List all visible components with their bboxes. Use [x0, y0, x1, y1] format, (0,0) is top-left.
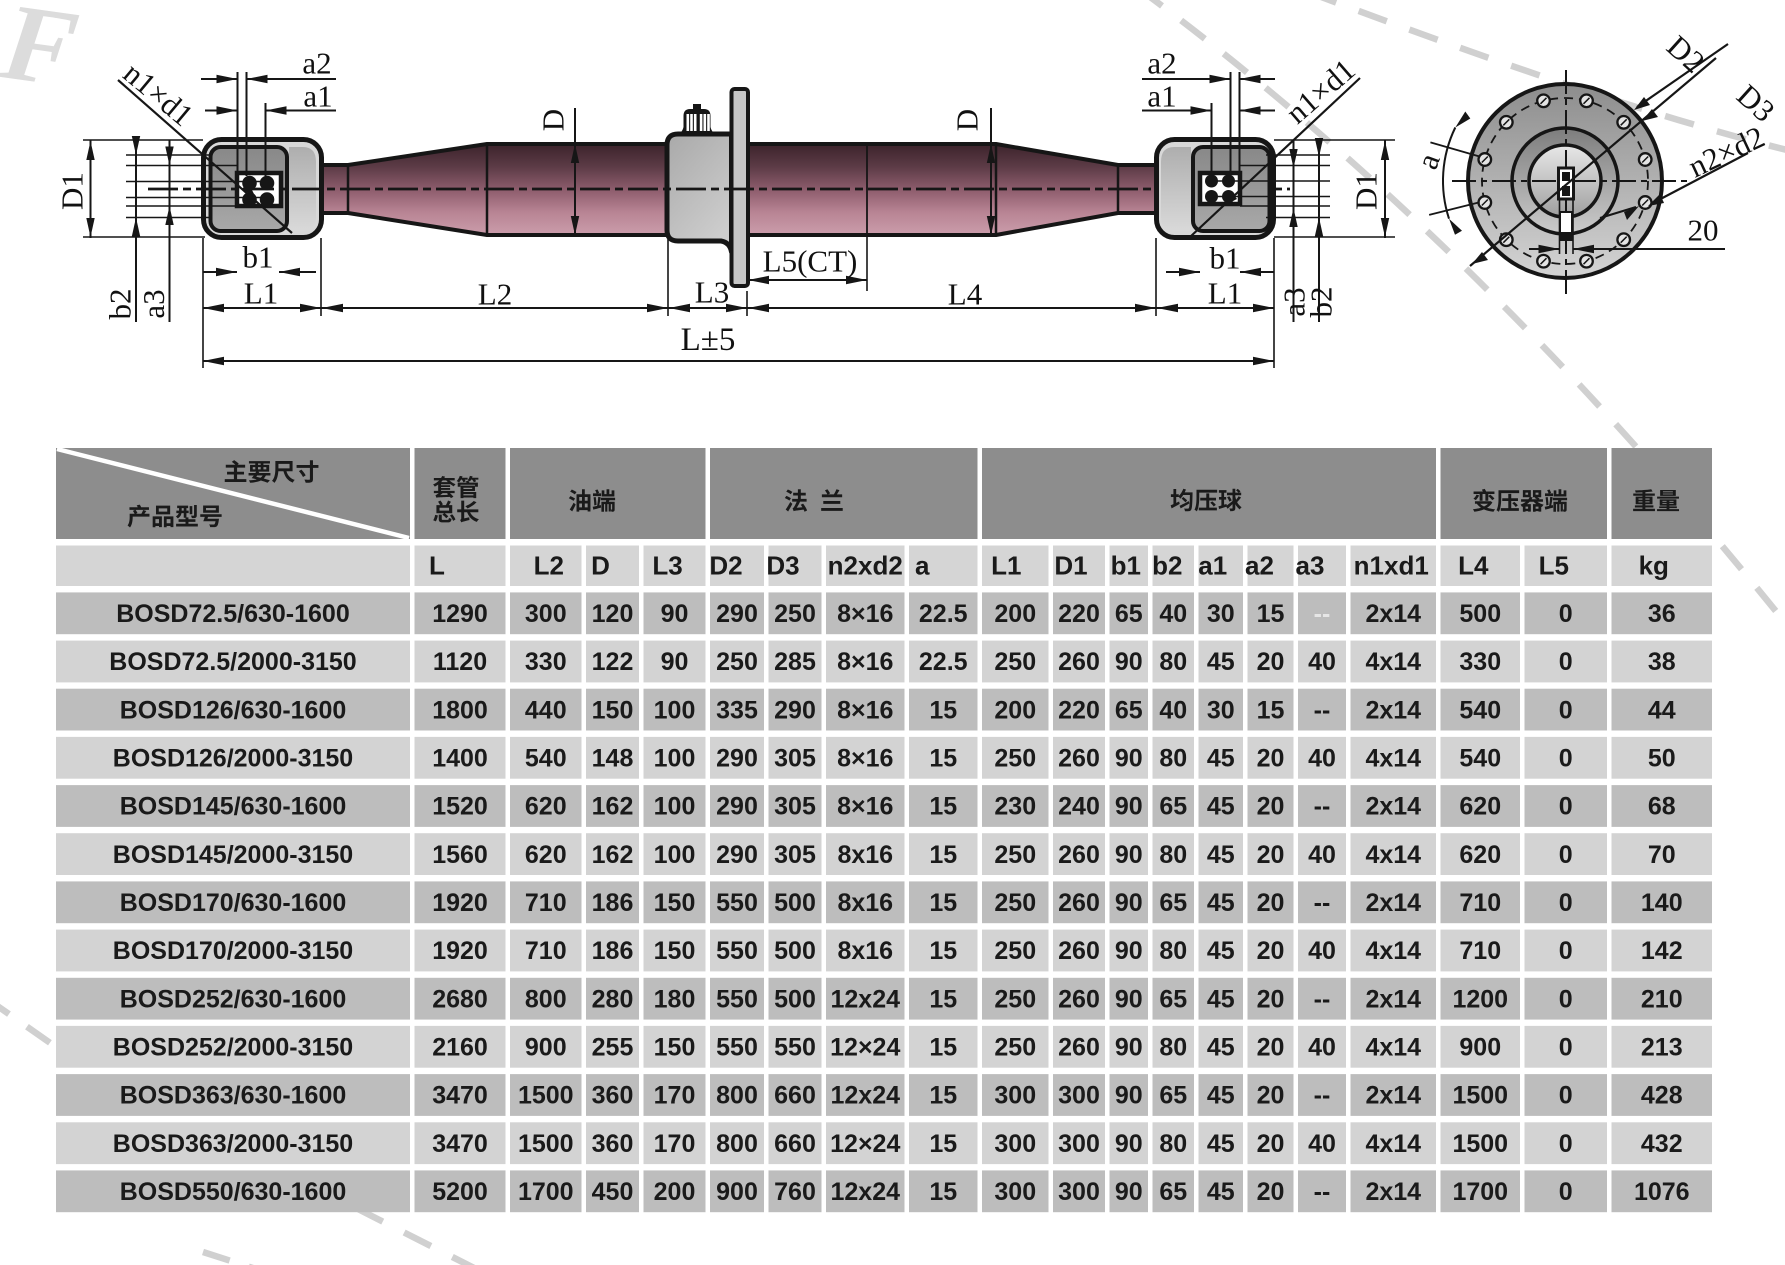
svg-text:20: 20 [1257, 1034, 1285, 1062]
svg-text:40: 40 [1308, 1034, 1336, 1062]
svg-text:L2: L2 [478, 277, 512, 312]
svg-text:15: 15 [929, 841, 957, 869]
svg-text:500: 500 [774, 889, 816, 917]
svg-text:150: 150 [654, 889, 696, 917]
svg-text:1400: 1400 [432, 744, 488, 772]
svg-text:1290: 1290 [432, 600, 488, 628]
svg-text:8x16: 8x16 [837, 841, 893, 869]
svg-text:b2: b2 [1304, 287, 1339, 318]
svg-text:20: 20 [1257, 937, 1285, 965]
svg-text:250: 250 [994, 841, 1036, 869]
svg-text:90: 90 [1115, 1082, 1143, 1110]
svg-text:a1: a1 [1198, 551, 1227, 581]
svg-text:2x14: 2x14 [1365, 793, 1421, 821]
svg-text:45: 45 [1207, 1034, 1235, 1062]
svg-text:900: 900 [1459, 1034, 1501, 1062]
svg-text:40: 40 [1159, 696, 1187, 724]
svg-text:30: 30 [1207, 696, 1235, 724]
svg-text:710: 710 [525, 937, 567, 965]
svg-text:0: 0 [1559, 696, 1573, 724]
svg-text:162: 162 [592, 841, 634, 869]
svg-text:D1: D1 [55, 172, 90, 210]
svg-text:300: 300 [994, 1178, 1036, 1206]
svg-text:b1: b1 [243, 240, 274, 275]
svg-text:1500: 1500 [1452, 1082, 1508, 1110]
svg-text:b1: b1 [1210, 241, 1241, 276]
svg-text:40: 40 [1308, 841, 1336, 869]
svg-text:90: 90 [1115, 648, 1143, 676]
svg-text:3470: 3470 [432, 1082, 488, 1110]
svg-text:360: 360 [592, 1130, 634, 1158]
svg-text:2680: 2680 [432, 985, 488, 1013]
svg-text:20: 20 [1257, 744, 1285, 772]
svg-text:290: 290 [716, 793, 758, 821]
svg-text:45: 45 [1207, 1082, 1235, 1110]
svg-text:900: 900 [716, 1178, 758, 1206]
svg-text:240: 240 [1058, 793, 1100, 821]
svg-text:20: 20 [1257, 841, 1285, 869]
svg-text:305: 305 [774, 744, 816, 772]
svg-text:0: 0 [1559, 793, 1573, 821]
svg-text:660: 660 [774, 1082, 816, 1110]
svg-text:68: 68 [1648, 793, 1676, 821]
svg-text:300: 300 [994, 1082, 1036, 1110]
svg-text:250: 250 [994, 1034, 1036, 1062]
svg-text:1700: 1700 [1452, 1178, 1508, 1206]
svg-text:162: 162 [592, 793, 634, 821]
svg-text:5200: 5200 [432, 1178, 488, 1206]
svg-text:--: -- [1314, 985, 1331, 1013]
svg-text:D2: D2 [709, 551, 742, 581]
svg-text:40: 40 [1308, 937, 1336, 965]
svg-text:b2: b2 [103, 289, 138, 320]
svg-text:1500: 1500 [518, 1082, 574, 1110]
svg-text:80: 80 [1159, 841, 1187, 869]
svg-text:44: 44 [1648, 696, 1676, 724]
svg-text:80: 80 [1159, 648, 1187, 676]
svg-text:150: 150 [654, 1034, 696, 1062]
svg-text:15: 15 [929, 985, 957, 1013]
svg-text:550: 550 [716, 1034, 758, 1062]
svg-text:a1: a1 [303, 79, 332, 114]
svg-text:290: 290 [716, 600, 758, 628]
svg-text:500: 500 [774, 985, 816, 1013]
svg-text:1700: 1700 [518, 1178, 574, 1206]
svg-text:80: 80 [1159, 744, 1187, 772]
svg-text:L1: L1 [244, 276, 278, 311]
svg-text:335: 335 [716, 696, 758, 724]
svg-text:BOSD363/630-1600: BOSD363/630-1600 [120, 1082, 347, 1110]
svg-text:230: 230 [994, 793, 1036, 821]
svg-text:15: 15 [1257, 696, 1285, 724]
svg-text:0: 0 [1559, 600, 1573, 628]
svg-text:a2: a2 [302, 46, 331, 81]
svg-text:0: 0 [1559, 1130, 1573, 1158]
svg-text:12x24: 12x24 [830, 1178, 900, 1206]
svg-text:0: 0 [1559, 1082, 1573, 1110]
svg-text:90: 90 [1115, 985, 1143, 1013]
svg-text:540: 540 [1459, 696, 1501, 724]
svg-text:BOSD145/2000-3150: BOSD145/2000-3150 [113, 841, 353, 869]
svg-text:a3: a3 [136, 289, 171, 318]
svg-text:90: 90 [661, 648, 689, 676]
svg-text:290: 290 [716, 744, 758, 772]
svg-text:D: D [950, 109, 985, 131]
svg-text:--: -- [1314, 696, 1331, 724]
svg-text:186: 186 [592, 889, 634, 917]
svg-text:200: 200 [994, 600, 1036, 628]
svg-text:40: 40 [1159, 600, 1187, 628]
svg-text:a1: a1 [1147, 79, 1176, 114]
svg-text:12x24: 12x24 [830, 1082, 900, 1110]
svg-text:432: 432 [1641, 1130, 1683, 1158]
svg-text:250: 250 [994, 985, 1036, 1013]
svg-text:--: -- [1314, 600, 1331, 628]
svg-text:BOSD170/2000-3150: BOSD170/2000-3150 [113, 937, 353, 965]
svg-text:a3: a3 [1296, 551, 1325, 581]
svg-text:65: 65 [1159, 793, 1187, 821]
svg-text:1520: 1520 [432, 793, 488, 821]
svg-text:65: 65 [1159, 889, 1187, 917]
svg-text:300: 300 [994, 1130, 1036, 1158]
svg-text:15: 15 [1257, 600, 1285, 628]
svg-text:150: 150 [592, 696, 634, 724]
svg-text:L1: L1 [991, 551, 1021, 581]
svg-text:2x14: 2x14 [1365, 985, 1421, 1013]
svg-text:186: 186 [592, 937, 634, 965]
svg-text:a2: a2 [1147, 46, 1176, 81]
svg-text:4x14: 4x14 [1365, 841, 1421, 869]
svg-text:12×24: 12×24 [830, 1130, 900, 1158]
svg-text:550: 550 [716, 937, 758, 965]
svg-text:BOSD145/630-1600: BOSD145/630-1600 [120, 793, 347, 821]
svg-text:2x14: 2x14 [1365, 696, 1421, 724]
svg-text:290: 290 [716, 841, 758, 869]
svg-text:620: 620 [525, 793, 567, 821]
svg-text:210: 210 [1641, 985, 1683, 1013]
svg-text:90: 90 [1115, 744, 1143, 772]
svg-text:D1: D1 [1054, 551, 1087, 581]
svg-text:L2: L2 [534, 551, 564, 581]
svg-text:620: 620 [1459, 793, 1501, 821]
svg-text:BOSD252/2000-3150: BOSD252/2000-3150 [113, 1034, 353, 1062]
svg-text:L±5: L±5 [681, 322, 736, 358]
svg-text:300: 300 [1058, 1130, 1100, 1158]
svg-text:450: 450 [592, 1178, 634, 1206]
svg-text:45: 45 [1207, 648, 1235, 676]
svg-text:22.5: 22.5 [919, 600, 968, 628]
svg-text:1800: 1800 [432, 696, 488, 724]
svg-text:20: 20 [1257, 648, 1285, 676]
svg-text:710: 710 [1459, 889, 1501, 917]
svg-text:180: 180 [654, 985, 696, 1013]
svg-text:65: 65 [1159, 1178, 1187, 1206]
svg-text:22.5: 22.5 [919, 648, 968, 676]
svg-text:148: 148 [592, 744, 634, 772]
svg-text:4x14: 4x14 [1365, 1034, 1421, 1062]
svg-text:30: 30 [1207, 600, 1235, 628]
svg-text:620: 620 [1459, 841, 1501, 869]
svg-text:305: 305 [774, 841, 816, 869]
svg-text:45: 45 [1207, 937, 1235, 965]
svg-text:760: 760 [774, 1178, 816, 1206]
svg-text:--: -- [1314, 889, 1331, 917]
svg-text:220: 220 [1058, 600, 1100, 628]
svg-text:8x16: 8x16 [837, 937, 893, 965]
svg-text:0: 0 [1559, 937, 1573, 965]
svg-text:20: 20 [1257, 985, 1285, 1013]
svg-text:300: 300 [1058, 1178, 1100, 1206]
svg-text:BOSD72.5/630-1600: BOSD72.5/630-1600 [116, 600, 349, 628]
svg-text:8×16: 8×16 [837, 696, 893, 724]
svg-text:L: L [429, 551, 445, 581]
svg-text:65: 65 [1115, 696, 1143, 724]
svg-text:100: 100 [654, 793, 696, 821]
svg-text:b1: b1 [1111, 551, 1141, 581]
svg-text:122: 122 [592, 648, 634, 676]
svg-text:15: 15 [929, 696, 957, 724]
svg-text:250: 250 [994, 744, 1036, 772]
svg-text:L4: L4 [948, 277, 983, 312]
svg-text:15: 15 [929, 1034, 957, 1062]
svg-text:540: 540 [525, 744, 567, 772]
svg-text:45: 45 [1207, 889, 1235, 917]
svg-text:90: 90 [1115, 841, 1143, 869]
svg-text:15: 15 [929, 1082, 957, 1110]
svg-text:213: 213 [1641, 1034, 1683, 1062]
svg-text:710: 710 [1459, 937, 1501, 965]
svg-text:260: 260 [1058, 1034, 1100, 1062]
svg-text:285: 285 [774, 648, 816, 676]
svg-text:250: 250 [994, 937, 1036, 965]
svg-text:800: 800 [716, 1082, 758, 1110]
svg-text:170: 170 [654, 1082, 696, 1110]
svg-text:20: 20 [1257, 1130, 1285, 1158]
svg-text:100: 100 [654, 744, 696, 772]
svg-text:36: 36 [1648, 600, 1676, 628]
svg-text:L4: L4 [1458, 551, 1489, 581]
svg-text:D: D [536, 109, 571, 131]
svg-text:70: 70 [1648, 841, 1676, 869]
svg-text:45: 45 [1207, 1130, 1235, 1158]
svg-text:800: 800 [716, 1130, 758, 1158]
svg-text:0: 0 [1559, 985, 1573, 1013]
svg-text:0: 0 [1559, 1178, 1573, 1206]
svg-text:305: 305 [774, 793, 816, 821]
svg-text:8×16: 8×16 [837, 793, 893, 821]
svg-text:a2: a2 [1245, 551, 1274, 581]
svg-text:--: -- [1314, 1082, 1331, 1110]
svg-text:0: 0 [1559, 648, 1573, 676]
svg-text:900: 900 [525, 1034, 567, 1062]
svg-text:150: 150 [654, 937, 696, 965]
svg-text:2x14: 2x14 [1365, 1178, 1421, 1206]
svg-text:80: 80 [1159, 1130, 1187, 1158]
svg-text:38: 38 [1648, 648, 1676, 676]
svg-text:45: 45 [1207, 744, 1235, 772]
svg-text:200: 200 [994, 696, 1036, 724]
svg-text:BOSD363/2000-3150: BOSD363/2000-3150 [113, 1130, 353, 1158]
svg-text:1500: 1500 [1452, 1130, 1508, 1158]
svg-text:260: 260 [1058, 841, 1100, 869]
svg-text:BOSD72.5/2000-3150: BOSD72.5/2000-3150 [109, 648, 356, 676]
svg-text:550: 550 [774, 1034, 816, 1062]
svg-text:n1xd1: n1xd1 [1354, 551, 1429, 581]
svg-text:15: 15 [929, 1130, 957, 1158]
svg-text:20: 20 [1257, 793, 1285, 821]
svg-text:20: 20 [1257, 889, 1285, 917]
svg-text:360: 360 [592, 1082, 634, 1110]
svg-text:8×16: 8×16 [837, 744, 893, 772]
svg-text:100: 100 [654, 841, 696, 869]
svg-text:65: 65 [1159, 1082, 1187, 1110]
svg-text:50: 50 [1648, 744, 1676, 772]
svg-text:BOSD126/630-1600: BOSD126/630-1600 [120, 696, 347, 724]
svg-text:kg: kg [1639, 551, 1669, 581]
svg-text:142: 142 [1641, 937, 1683, 965]
svg-text:620: 620 [525, 841, 567, 869]
svg-text:2x14: 2x14 [1365, 600, 1421, 628]
svg-text:220: 220 [1058, 696, 1100, 724]
svg-text:a: a [915, 551, 930, 581]
svg-text:65: 65 [1115, 600, 1143, 628]
svg-text:D3: D3 [766, 551, 799, 581]
svg-text:200: 200 [654, 1178, 696, 1206]
svg-text:L5(CT): L5(CT) [763, 244, 858, 279]
svg-text:90: 90 [1115, 1178, 1143, 1206]
svg-text:260: 260 [1058, 985, 1100, 1013]
svg-text:300: 300 [1058, 1082, 1100, 1110]
svg-text:D1: D1 [1349, 172, 1384, 210]
svg-text:1076: 1076 [1634, 1178, 1690, 1206]
svg-text:15: 15 [929, 1178, 957, 1206]
svg-text:8x16: 8x16 [837, 889, 893, 917]
svg-text:0: 0 [1559, 1034, 1573, 1062]
svg-text:20: 20 [1257, 1082, 1285, 1110]
svg-text:1120: 1120 [433, 648, 487, 676]
svg-text:65: 65 [1159, 985, 1187, 1013]
svg-text:45: 45 [1207, 841, 1235, 869]
svg-text:L1: L1 [1208, 276, 1242, 311]
svg-text:140: 140 [1641, 889, 1683, 917]
svg-text:260: 260 [1058, 648, 1100, 676]
svg-text:250: 250 [716, 648, 758, 676]
svg-text:12x24: 12x24 [830, 985, 900, 1013]
svg-text:--: -- [1314, 1178, 1331, 1206]
svg-text:20: 20 [1257, 1178, 1285, 1206]
svg-text:2x14: 2x14 [1365, 889, 1421, 917]
svg-text:L5: L5 [1539, 551, 1569, 581]
svg-text:1500: 1500 [518, 1130, 574, 1158]
svg-text:12×24: 12×24 [830, 1034, 900, 1062]
svg-text:80: 80 [1159, 937, 1187, 965]
svg-text:500: 500 [1459, 600, 1501, 628]
svg-text:45: 45 [1207, 1178, 1235, 1206]
svg-text:300: 300 [525, 600, 567, 628]
svg-text:1560: 1560 [432, 841, 488, 869]
svg-text:BOSD252/630-1600: BOSD252/630-1600 [120, 985, 347, 1013]
svg-text:8×16: 8×16 [837, 600, 893, 628]
svg-text:170: 170 [654, 1130, 696, 1158]
svg-text:0: 0 [1559, 744, 1573, 772]
svg-text:660: 660 [774, 1130, 816, 1158]
svg-text:3470: 3470 [432, 1130, 488, 1158]
svg-text:45: 45 [1207, 793, 1235, 821]
svg-text:2160: 2160 [432, 1034, 488, 1062]
svg-text:40: 40 [1308, 648, 1336, 676]
svg-text:15: 15 [929, 793, 957, 821]
svg-text:100: 100 [654, 696, 696, 724]
svg-text:255: 255 [592, 1034, 634, 1062]
svg-text:D: D [591, 551, 610, 581]
svg-text:440: 440 [525, 696, 567, 724]
svg-text:BOSD170/630-1600: BOSD170/630-1600 [120, 889, 347, 917]
svg-text:90: 90 [1115, 889, 1143, 917]
svg-text:1920: 1920 [432, 937, 488, 965]
svg-text:1200: 1200 [1452, 985, 1508, 1013]
svg-text:--: -- [1314, 793, 1331, 821]
svg-text:280: 280 [592, 985, 634, 1013]
svg-text:330: 330 [1459, 648, 1501, 676]
svg-text:BOSD126/2000-3150: BOSD126/2000-3150 [113, 744, 353, 772]
svg-text:45: 45 [1207, 985, 1235, 1013]
svg-text:2x14: 2x14 [1365, 1082, 1421, 1110]
svg-text:500: 500 [774, 937, 816, 965]
svg-text:40: 40 [1308, 744, 1336, 772]
svg-text:90: 90 [1115, 1130, 1143, 1158]
svg-text:4x14: 4x14 [1365, 937, 1421, 965]
svg-text:90: 90 [1115, 793, 1143, 821]
svg-text:710: 710 [525, 889, 567, 917]
svg-text:0: 0 [1559, 889, 1573, 917]
svg-text:BOSD550/630-1600: BOSD550/630-1600 [120, 1178, 347, 1206]
svg-text:540: 540 [1459, 744, 1501, 772]
svg-text:250: 250 [994, 648, 1036, 676]
svg-text:20: 20 [1688, 213, 1719, 248]
svg-text:550: 550 [716, 889, 758, 917]
svg-text:120: 120 [592, 600, 634, 628]
svg-text:15: 15 [929, 937, 957, 965]
svg-text:260: 260 [1058, 937, 1100, 965]
svg-text:290: 290 [774, 696, 816, 724]
svg-text:250: 250 [774, 600, 816, 628]
svg-text:4x14: 4x14 [1365, 1130, 1421, 1158]
svg-text:80: 80 [1159, 1034, 1187, 1062]
svg-text:L3: L3 [695, 275, 729, 310]
svg-text:4x14: 4x14 [1365, 648, 1421, 676]
svg-text:15: 15 [929, 744, 957, 772]
svg-text:4x14: 4x14 [1365, 744, 1421, 772]
svg-text:90: 90 [661, 600, 689, 628]
svg-text:15: 15 [929, 889, 957, 917]
svg-text:330: 330 [525, 648, 567, 676]
svg-text:0: 0 [1559, 841, 1573, 869]
svg-text:L3: L3 [652, 551, 682, 581]
svg-text:800: 800 [525, 985, 567, 1013]
svg-text:90: 90 [1115, 937, 1143, 965]
svg-text:550: 550 [716, 985, 758, 1013]
svg-text:250: 250 [994, 889, 1036, 917]
svg-text:b2: b2 [1152, 551, 1182, 581]
svg-text:428: 428 [1641, 1082, 1683, 1110]
svg-text:260: 260 [1058, 744, 1100, 772]
svg-text:260: 260 [1058, 889, 1100, 917]
svg-text:40: 40 [1308, 1130, 1336, 1158]
svg-text:n2xd2: n2xd2 [828, 551, 903, 581]
svg-text:8×16: 8×16 [837, 648, 893, 676]
svg-text:90: 90 [1115, 1034, 1143, 1062]
svg-text:1920: 1920 [432, 889, 488, 917]
